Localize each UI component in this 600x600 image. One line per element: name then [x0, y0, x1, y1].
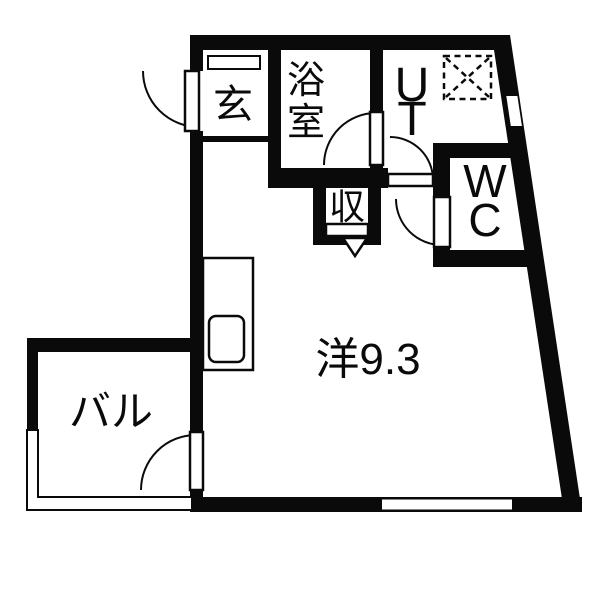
- room-label-utility-char2: T: [397, 93, 426, 146]
- kitchen-counter: [203, 258, 253, 370]
- wall-wc-left-upper: [433, 143, 450, 197]
- wall-balcony-top: [27, 338, 203, 352]
- window-bottom: [382, 500, 512, 510]
- room-label-entrance: 玄: [213, 83, 253, 127]
- floorplan-svg: 玄 浴 室 U T W C 収 洋9.3 バル: [0, 0, 600, 600]
- wall-top: [190, 35, 510, 50]
- room-label-closet: 収: [329, 186, 365, 227]
- wall-wc-bottom: [433, 250, 528, 267]
- entrance-door-leaf: [185, 71, 199, 131]
- entrance-step-edge: [203, 136, 268, 142]
- room-label-western-room: 洋9.3: [315, 335, 420, 384]
- room-label-bathroom-char2: 室: [287, 102, 325, 144]
- wall-closet-right: [368, 188, 381, 235]
- room-label-wc-char2: C: [468, 194, 501, 246]
- utility-door-leaf: [388, 174, 433, 186]
- floorplan-page: 玄 浴 室 U T W C 収 洋9.3 バル: [0, 0, 600, 600]
- wall-entrance-bathroom-divider: [268, 50, 281, 170]
- room-label-balcony: バル: [69, 388, 153, 435]
- kitchen-sink: [209, 316, 244, 362]
- wall-bathroom-bottom: [268, 168, 388, 188]
- wall-left-upper: [190, 35, 203, 71]
- shoe-cabinet: [208, 56, 260, 69]
- wc-door-leaf: [434, 197, 450, 247]
- bathroom-door-leaf: [370, 112, 383, 165]
- wall-closet-left: [313, 188, 326, 235]
- balcony-door-leaf: [190, 432, 203, 490]
- room-label-bathroom-char1: 浴: [287, 60, 325, 102]
- wall-left-middle: [190, 131, 203, 432]
- wall-balcony-left: [27, 352, 38, 430]
